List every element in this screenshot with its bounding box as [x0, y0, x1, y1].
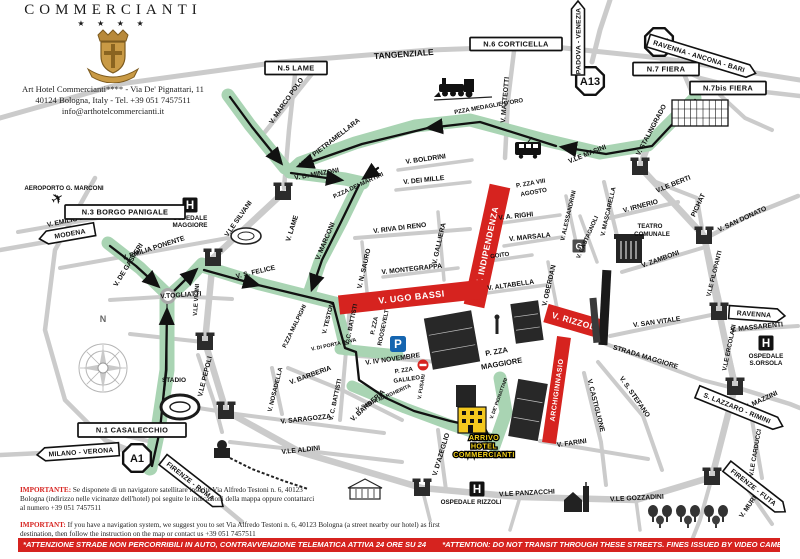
street-label: N — [100, 314, 107, 324]
street-label: V. CASTAGNOLI — [576, 215, 600, 260]
trees-icon — [648, 505, 728, 528]
street-label: AEROPORTO G. MARCONI — [24, 185, 104, 192]
exit-sign-label: N.1 CASALECCHIO — [96, 426, 168, 435]
gate-cap — [285, 183, 293, 187]
gate-tower — [727, 379, 732, 395]
no-entry-bar — [420, 364, 427, 366]
stadium-icon — [161, 395, 199, 419]
exit-sign-label: N.3 BORGO PANIGALE — [82, 208, 169, 217]
hotel-window — [462, 411, 466, 415]
gate-tower — [711, 304, 716, 320]
parking-letter: P — [394, 339, 402, 351]
tree-trunk — [666, 516, 668, 522]
train-wheel — [450, 91, 456, 97]
street-label: P.ZZA MALPIGHI — [282, 304, 308, 349]
exit-sign: N.6 CORTICELLA — [470, 38, 562, 51]
street-label: P. ZZA — [370, 316, 380, 336]
building-block — [424, 310, 480, 370]
gate-tower — [229, 403, 234, 419]
train-icon — [434, 78, 474, 98]
exit-sign: N.7 FIERA — [633, 63, 699, 76]
gate-body — [202, 341, 208, 350]
fiera-building-icon — [672, 100, 728, 126]
warning-banner-en: *ATTENTION: DO NOT TRANSIT THROUGH THESE… — [442, 540, 780, 549]
church-icon — [564, 482, 589, 512]
hospital-letter: H — [762, 338, 770, 350]
tree-trunk — [680, 516, 682, 522]
direction-sign: RAVENNA — [729, 306, 786, 323]
villa-body — [350, 488, 380, 499]
compass-rose-icon — [79, 344, 127, 392]
hospital-icon: HOSPEDALES.ORSOLA — [749, 336, 784, 367]
map-page: V. INDIPENDENZAV. UGO BASSIV. RIZZOLIARC… — [0, 0, 800, 559]
tree-trunk — [708, 516, 710, 522]
theatre-icon — [614, 234, 644, 263]
train-wheel — [466, 91, 473, 98]
gate-tower — [218, 403, 223, 419]
street-label: V.LE GOZZADINI — [610, 494, 664, 504]
fiera-body — [672, 100, 728, 126]
gate-cap — [703, 468, 711, 472]
gate-cap — [714, 468, 722, 472]
train-wheel — [458, 91, 464, 97]
gate-cap — [706, 227, 714, 231]
hospital-letter: H — [186, 200, 194, 212]
street-line — [636, 500, 640, 530]
highway-badge-label: A13 — [580, 76, 600, 88]
hotel-window — [462, 419, 466, 423]
train-funnel — [442, 78, 446, 84]
gate-tower — [696, 228, 701, 244]
address-line: info@arthotelcommercianti.it — [8, 106, 218, 117]
building-block — [508, 379, 548, 441]
street-label: P. ZZA — [394, 367, 414, 376]
parking-icon: P — [390, 336, 406, 352]
asinelli-tower — [598, 270, 611, 345]
gate-body — [709, 476, 715, 485]
tram-window — [526, 144, 531, 148]
stadium-field — [170, 402, 190, 412]
hotel-stars: ★ ★ ★ ★ — [8, 19, 218, 28]
arena-inner — [238, 232, 254, 240]
gate-tower — [707, 228, 712, 244]
church-tower — [583, 486, 589, 512]
tree-trunk — [687, 524, 689, 528]
street-label: V. N. SAURO — [357, 248, 373, 289]
building-icon — [424, 310, 480, 370]
tree-trunk — [652, 516, 654, 522]
gate-tower — [715, 469, 720, 485]
street-label: V.LE VICINI — [193, 283, 201, 316]
building-icon — [508, 379, 548, 441]
hotel-address: Art Hotel Commercianti**** - Via De' Pig… — [8, 84, 218, 117]
statue-icon — [495, 315, 500, 335]
tree-top — [690, 505, 700, 517]
villa-roof — [348, 479, 382, 488]
tram-window — [519, 144, 524, 148]
gate-tower — [414, 480, 419, 496]
street-label: V. GALLIERA — [431, 222, 447, 265]
warning-banner: *ATTENZIONE STRADE NON PERCORRIBILI IN A… — [18, 538, 780, 552]
address-line: Art Hotel Commercianti**** - Via De' Pig… — [8, 84, 218, 95]
gate-cap — [424, 479, 432, 483]
hotel-window — [478, 411, 482, 415]
exit-sign: N.1 CASALECCHIO — [78, 423, 186, 437]
exit-sign-label: N.7bis FIERA — [703, 84, 753, 93]
gate-cap — [217, 402, 225, 406]
building-icon — [510, 300, 543, 344]
gate-body — [732, 386, 738, 395]
street-line — [510, 497, 520, 530]
gate-tower — [722, 304, 727, 320]
street-label: TEATRO — [638, 223, 663, 230]
tree-top — [662, 505, 672, 517]
exit-sign: N.5 LAME — [265, 62, 327, 75]
street-label: V. MASSARENTI — [730, 321, 783, 333]
gate-tower — [205, 250, 210, 266]
gate-tower — [425, 480, 430, 496]
hotel-door — [468, 425, 473, 433]
building-block — [510, 300, 543, 344]
gate-cap — [196, 333, 204, 337]
tram-body — [515, 142, 541, 155]
exit-sign-label: N.5 LAME — [278, 64, 315, 73]
street-label: V. ZAMBONI — [641, 250, 681, 270]
church-body — [214, 448, 230, 458]
train-cowcatcher — [434, 92, 441, 97]
train-wheel — [442, 91, 448, 97]
hotel-window — [470, 419, 474, 423]
highway-badge-label: A1 — [130, 453, 144, 465]
villa-icon — [348, 479, 382, 499]
exit-sign-label: N.6 CORTICELLA — [483, 40, 549, 49]
gate-cap — [274, 183, 282, 187]
street-label: V. S. STEFANO — [618, 375, 651, 418]
no-entry-icon — [418, 360, 429, 371]
street-label: V. MARCO POLO — [268, 77, 305, 126]
gate-tower — [216, 250, 221, 266]
gate-cap — [710, 303, 718, 307]
gate-body — [280, 191, 286, 200]
gate-cap — [413, 479, 421, 483]
gate-cap — [215, 249, 223, 253]
gate-cap — [721, 303, 729, 307]
tram-wheel — [519, 154, 523, 158]
hotel-crest-icon — [84, 29, 142, 83]
gate-tower — [704, 469, 709, 485]
tree-top — [676, 505, 686, 517]
hotel-window — [470, 411, 474, 415]
arrivo-hotel-label: COMMERCIANTI — [453, 450, 515, 459]
gate-body — [716, 311, 722, 320]
gate-body — [223, 410, 229, 419]
hospital-label: MAGGIORE — [173, 222, 208, 229]
gate-cap — [695, 227, 703, 231]
statue-top — [495, 315, 500, 320]
highway-badge: A1 — [123, 444, 151, 472]
note-italian: IMPORTANTE: Se disponete di un navigator… — [20, 486, 315, 512]
hospital-label: S.ORSOLA — [750, 360, 783, 367]
note-english-text: If you have a navigation system, we sugg… — [20, 521, 440, 538]
gate-tower — [632, 159, 637, 175]
gate-tower — [275, 184, 280, 200]
gate-tower — [208, 334, 213, 350]
arena-icon — [231, 228, 261, 244]
gate-cap — [726, 378, 734, 382]
railway-line — [434, 97, 492, 100]
hotel-name: COMMERCIANTI — [8, 2, 218, 19]
gate-tower — [197, 334, 202, 350]
tree-top — [718, 505, 728, 517]
gate-tower — [643, 159, 648, 175]
street-label: AGOSTO — [520, 187, 548, 199]
direction-sign: MILANO - VERONA — [37, 443, 120, 462]
tree-top — [648, 505, 658, 517]
gate-tower — [738, 379, 743, 395]
hotel-back-building — [456, 385, 476, 407]
exit-sign-label: N.7 FIERA — [647, 65, 686, 74]
gate-cap — [737, 378, 745, 382]
street-label: STADIO — [162, 377, 186, 384]
tree-top — [656, 516, 664, 525]
tram-window — [533, 144, 538, 148]
tree-trunk — [715, 524, 717, 528]
direction-sign: PADOVA - VENEZIA — [572, 1, 585, 75]
tree-trunk — [659, 524, 661, 528]
theatre-body — [616, 237, 642, 263]
warning-banner-it: *ATTENZIONE STRADE NON PERCORRIBILI IN A… — [23, 540, 426, 549]
compass-hub — [98, 363, 108, 373]
note-english: IMPORTANT: If you have a navigation syst… — [20, 521, 460, 538]
city-gate-icon — [413, 479, 432, 497]
hotel-window — [478, 419, 482, 423]
street-label: P. ZZA — [485, 345, 510, 358]
gate-cap — [642, 158, 650, 162]
gate-tower — [286, 184, 291, 200]
gate-cap — [207, 333, 215, 337]
hotel-building-icon — [456, 385, 486, 433]
street-label: COMUNALE — [634, 231, 670, 238]
gate-cap — [204, 249, 212, 253]
city-gate-icon — [204, 249, 223, 267]
street-line — [110, 297, 160, 300]
hospital-label: OSPEDALE RIZZOLI — [441, 499, 502, 506]
tree-trunk — [694, 516, 696, 522]
exit-sign: N.7bis FIERA — [690, 82, 766, 95]
street-label: TANGENZIALE — [374, 47, 435, 61]
hotel-logo: COMMERCIANTI ★ ★ ★ ★ Art Hotel Commercia… — [8, 2, 218, 117]
gate-cap — [228, 402, 236, 406]
train-cab — [464, 79, 474, 92]
tram-wheel — [533, 154, 537, 158]
route-arrow — [230, 97, 281, 163]
street-label: STRADA MAGGIORE — [612, 344, 679, 371]
gate-body — [210, 257, 216, 266]
street-label: V. SAN DONATO — [717, 205, 768, 234]
street-label: V. LAME — [285, 214, 300, 242]
gate-body — [637, 166, 643, 175]
note-english-label: IMPORTANT: — [20, 521, 66, 529]
direction-sign-label: PADOVA - VENEZIA — [576, 8, 583, 75]
address-line: 40124 Bologna, Italy - Tel. +39 051 7457… — [8, 95, 218, 106]
tree-top — [712, 516, 720, 525]
tree-top — [684, 516, 692, 525]
tree-top — [704, 505, 714, 517]
gate-cap — [631, 158, 639, 162]
street-line — [0, 242, 46, 250]
street-label: MAGGIORE — [480, 355, 523, 371]
gate-body — [701, 235, 707, 244]
two-towers-icon — [589, 270, 611, 345]
tree-trunk — [722, 516, 724, 522]
hospital-letter: H — [473, 484, 481, 496]
street-label: ROOSEVELT — [377, 309, 391, 346]
exit-sign: N.3 BORGO PANIGALE — [65, 205, 185, 219]
portico-line — [230, 458, 308, 489]
statue-column — [496, 319, 499, 334]
street-label: PZZA MEDAGLIE D'ORO — [454, 98, 524, 116]
gate-body — [419, 487, 425, 496]
note-italian-label: IMPORTANTE: — [20, 486, 71, 494]
